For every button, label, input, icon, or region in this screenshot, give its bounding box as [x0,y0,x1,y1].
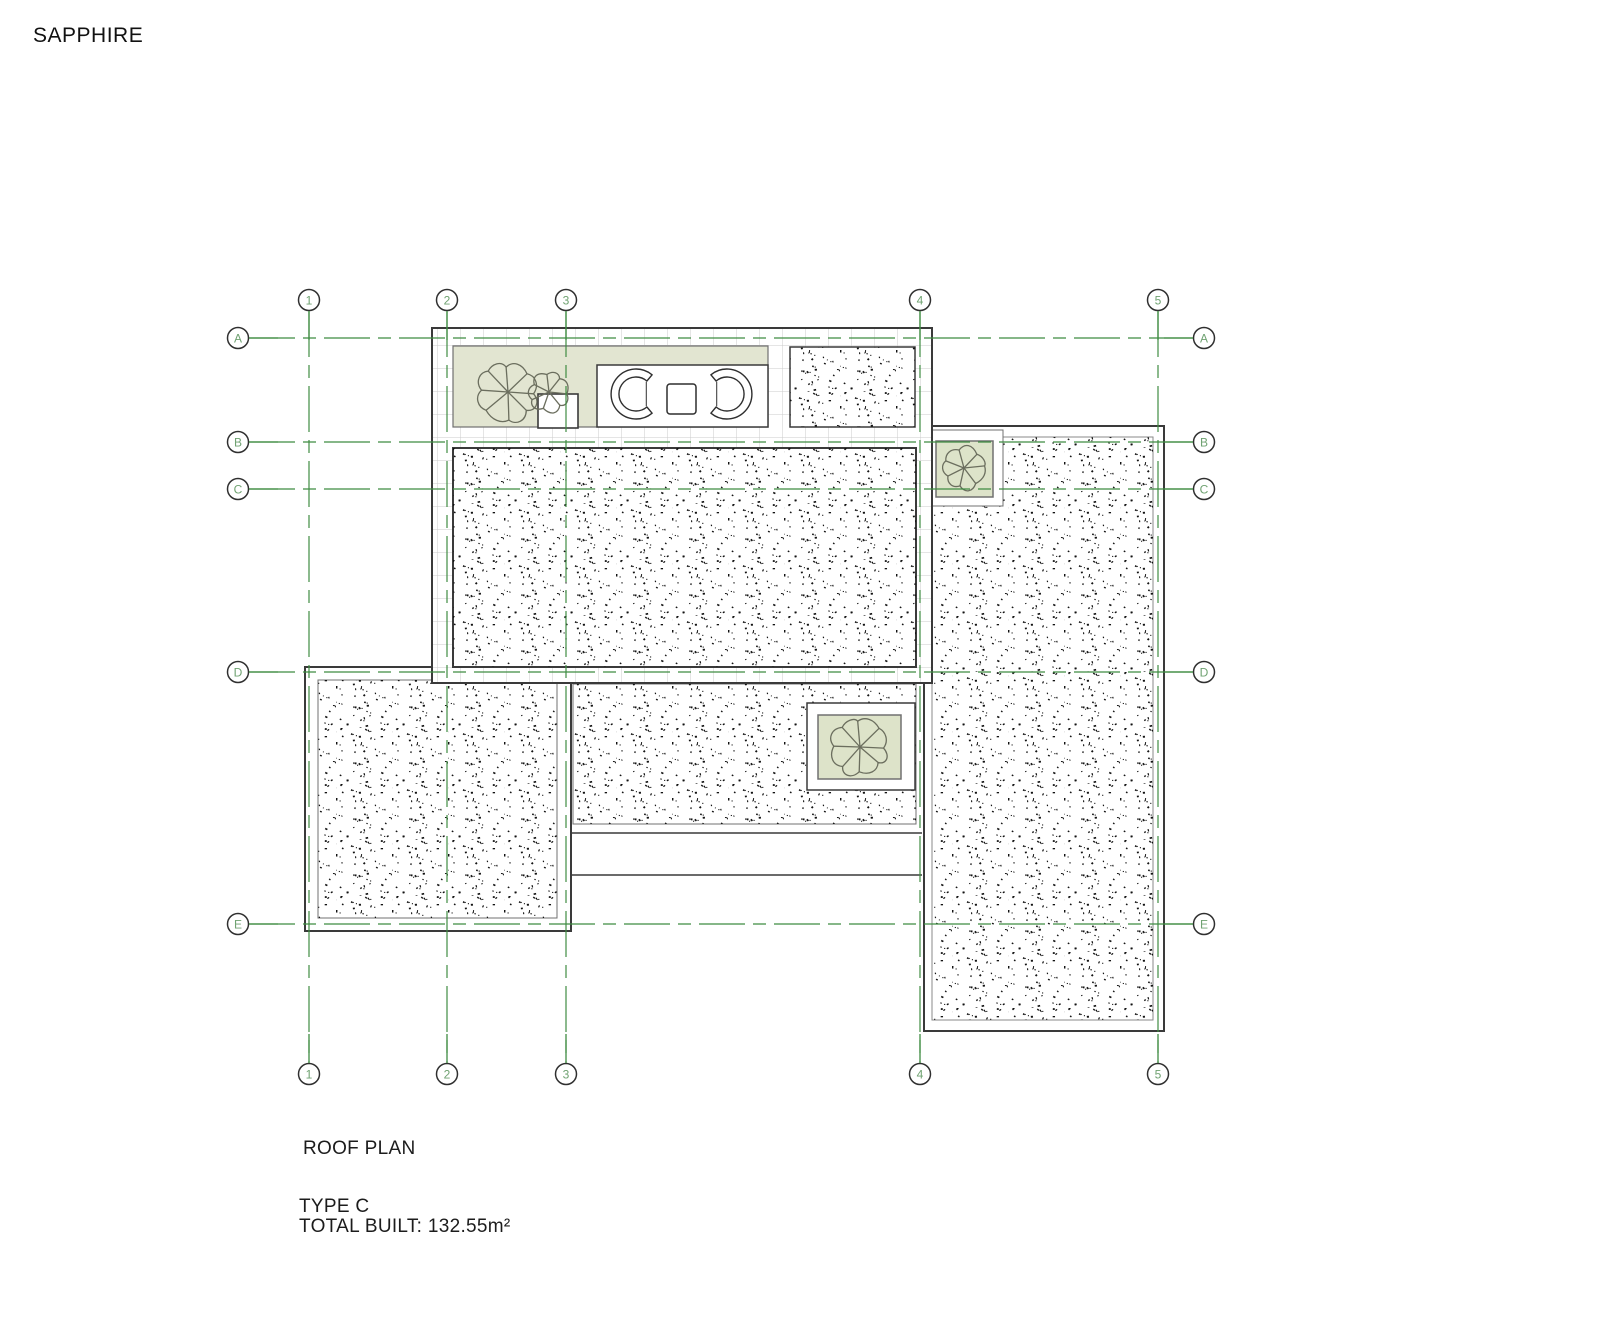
grid-bubble-row-E-left: E [228,914,249,935]
grid-bubble-row-A-left-label: A [234,331,242,345]
grid-bubble-col-3-bottom: 3 [556,1064,577,1085]
grid-bubble-row-E-left-label: E [234,917,242,931]
grid-bubble-col-5-bottom: 5 [1148,1064,1169,1085]
grid-bubble-row-D-left-label: D [234,665,243,679]
grid-bubble-col-3-bottom-label: 3 [563,1067,570,1081]
grid-bubble-col-5-top-label: 5 [1155,293,1162,307]
grid-bubble-col-1-top: 1 [299,290,320,311]
coffee-table [667,384,696,414]
grid-bubble-row-B-left-label: B [234,435,242,449]
upper-gravel-main-texture [453,448,916,667]
grid-bubble-row-C-right: C [1194,479,1215,500]
grid-bubble-row-A-left: A [228,328,249,349]
grid-bubble-col-4-top: 4 [910,290,931,311]
grid-bubble-row-E-right: E [1194,914,1215,935]
grid-bubble-col-2-top-label: 2 [444,293,451,307]
grid-bubble-row-D-right-label: D [1200,665,1209,679]
plan-type-label: TYPE C [299,1196,369,1218]
total-built-label: TOTAL BUILT: 132.55m² [299,1216,511,1238]
grid-bubble-row-D-right: D [1194,662,1215,683]
grid-bubble-col-1-bottom-label: 1 [306,1067,313,1081]
grid-bubble-col-2-bottom-label: 2 [444,1067,451,1081]
grid-bubble-col-4-bottom: 4 [910,1064,931,1085]
plan-name-label: ROOF PLAN [303,1138,416,1160]
grid-bubble-col-1-top-label: 1 [306,293,313,307]
grid-bubble-row-D-left: D [228,662,249,683]
grid-bubble-col-4-bottom-label: 4 [917,1067,924,1081]
grid-bubble-row-C-left-label: C [234,482,243,496]
grid-bubble-row-E-right-label: E [1200,917,1208,931]
roof-block-right-gravel-texture [932,437,1153,1020]
grid-bubble-col-1-bottom: 1 [299,1064,320,1085]
grid-bubble-row-B-left: B [228,432,249,453]
grid-bubble-col-2-top: 2 [437,290,458,311]
grid-bubble-row-C-left: C [228,479,249,500]
roof-plan-drawing: 1122334455AABBCCDDEE [0,0,1600,1342]
grid-bubble-col-3-top: 3 [556,290,577,311]
grid-bubble-col-5-bottom-label: 5 [1155,1067,1162,1081]
grid-bubble-col-5-top: 5 [1148,290,1169,311]
roof-block-left-gravel-texture [318,680,557,918]
grid-bubble-row-A-right: A [1194,328,1215,349]
grid-bubble-row-B-right-label: B [1200,435,1208,449]
page: SAPPHIRE 1122334455AABBCCDDEE ROOF PLAN … [0,0,1600,1342]
grid-bubble-col-4-top-label: 4 [917,293,924,307]
grid-bubble-row-A-right-label: A [1200,331,1208,345]
upper-gravel-panel-texture [790,347,915,427]
grid-bubble-col-3-top-label: 3 [563,293,570,307]
grid-bubble-row-C-right-label: C [1200,482,1209,496]
grid-bubble-col-2-bottom: 2 [437,1064,458,1085]
grid-bubble-row-B-right: B [1194,432,1215,453]
